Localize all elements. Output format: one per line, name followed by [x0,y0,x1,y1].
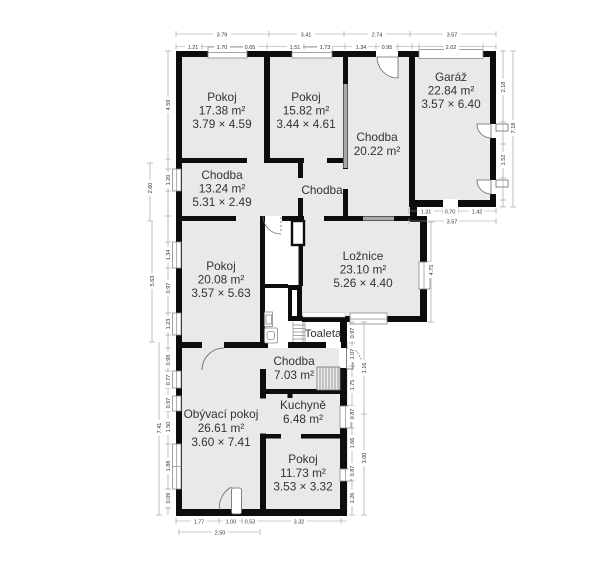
svg-text:1.42: 1.42 [472,210,483,216]
svg-text:20.08 m²: 20.08 m² [198,273,245,287]
svg-text:15.82 m²: 15.82 m² [283,104,330,118]
svg-text:3.32: 3.32 [294,520,305,526]
svg-text:1.34: 1.34 [356,45,367,51]
svg-text:7.18: 7.18 [511,123,517,134]
svg-text:1.75: 1.75 [350,380,356,391]
svg-text:2.60: 2.60 [148,183,154,194]
svg-text:13.24 m²: 13.24 m² [199,182,246,196]
svg-text:1.23: 1.23 [166,319,172,330]
svg-text:Chodba: Chodba [273,354,315,368]
svg-text:1.52: 1.52 [501,155,507,166]
svg-text:6.48 m²: 6.48 m² [283,412,323,426]
svg-text:1.26: 1.26 [350,493,356,504]
svg-text:Chodba: Chodba [356,130,398,144]
svg-text:0.87: 0.87 [350,466,356,477]
svg-text:23.10 m²: 23.10 m² [340,263,387,277]
svg-text:1.07: 1.07 [350,349,356,360]
svg-text:0.98: 0.98 [166,355,172,366]
svg-text:3.79 × 4.59: 3.79 × 4.59 [192,117,251,131]
svg-text:1.77: 1.77 [194,520,205,526]
svg-text:Pokoj: Pokoj [288,452,318,466]
svg-text:1.70: 1.70 [217,45,228,51]
svg-text:22.84 m²: 22.84 m² [428,84,475,98]
svg-text:7.03 m²: 7.03 m² [274,368,314,382]
svg-text:5.31 × 2.49: 5.31 × 2.49 [192,195,251,209]
svg-text:0.65: 0.65 [245,45,256,51]
svg-text:3.57: 3.57 [447,220,458,226]
svg-text:Obývací pokoj: Obývací pokoj [184,407,259,421]
svg-text:0.97: 0.97 [166,398,172,409]
svg-text:Kuchyně: Kuchyně [280,398,326,412]
svg-text:3.53 × 3.32: 3.53 × 3.32 [273,480,332,494]
svg-text:Chodba: Chodba [301,183,343,197]
svg-text:1.66: 1.66 [350,438,356,449]
svg-text:1.16: 1.16 [362,363,368,374]
svg-text:0.09: 0.09 [166,493,172,504]
svg-text:2.50: 2.50 [215,531,226,537]
svg-text:1.20: 1.20 [166,175,172,186]
svg-text:0.97: 0.97 [350,328,356,339]
svg-text:5.63: 5.63 [150,276,156,287]
svg-text:2.74: 2.74 [372,33,383,39]
svg-text:1.00: 1.00 [226,520,237,526]
svg-text:Garáž: Garáž [435,70,467,84]
svg-text:3.57: 3.57 [447,33,458,39]
svg-text:Chodba: Chodba [201,168,243,182]
svg-text:4.75: 4.75 [429,265,435,276]
svg-text:0.53: 0.53 [245,520,256,526]
svg-text:0.87: 0.87 [350,409,356,420]
svg-text:0.70: 0.70 [445,210,456,216]
svg-text:3.41: 3.41 [301,33,312,39]
svg-text:1.88: 1.88 [166,461,172,472]
svg-text:26.61 m²: 26.61 m² [198,421,245,435]
svg-text:1.21: 1.21 [188,45,199,51]
svg-text:1.51: 1.51 [290,45,301,51]
svg-text:3.00: 3.00 [362,453,368,464]
svg-text:3.57 × 6.40: 3.57 × 6.40 [421,97,481,111]
svg-text:Pokoj: Pokoj [206,259,236,273]
svg-text:1.34: 1.34 [166,250,172,261]
svg-text:1.31: 1.31 [421,210,432,216]
svg-text:1.73: 1.73 [320,45,331,51]
svg-text:3.57 × 5.63: 3.57 × 5.63 [191,286,251,300]
svg-text:3.44 × 4.61: 3.44 × 4.61 [276,117,335,131]
svg-text:0.77: 0.77 [166,375,172,386]
svg-text:Pokoj: Pokoj [207,90,237,104]
svg-text:7.41: 7.41 [157,423,163,434]
svg-text:Toaleta: Toaleta [305,328,342,340]
svg-text:20.22 m²: 20.22 m² [354,144,401,158]
svg-text:2.18: 2.18 [501,82,507,93]
svg-text:4.59: 4.59 [166,100,172,111]
svg-text:Ložnice: Ložnice [343,249,384,263]
svg-text:3.60 × 7.41: 3.60 × 7.41 [191,435,250,449]
svg-text:3.79: 3.79 [217,33,228,39]
svg-text:17.38 m²: 17.38 m² [199,104,246,118]
svg-text:Pokoj: Pokoj [291,90,321,104]
svg-text:0.97: 0.97 [166,283,172,294]
svg-text:5.26 × 4.40: 5.26 × 4.40 [333,276,393,290]
svg-text:2.02: 2.02 [446,45,457,51]
svg-text:1.50: 1.50 [166,422,172,433]
svg-text:0.95: 0.95 [382,45,393,51]
svg-text:11.73 m²: 11.73 m² [280,466,326,480]
